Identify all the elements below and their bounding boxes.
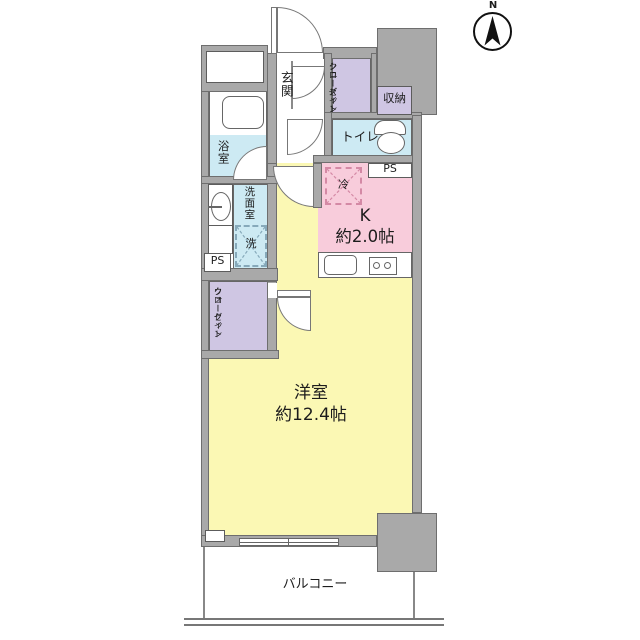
kitchen-size-label: 約2.0帖 <box>307 227 423 246</box>
wall <box>201 45 209 547</box>
wall <box>412 115 422 513</box>
wic-label-line2: クローゼット <box>211 287 222 338</box>
washbasin-tap <box>208 206 222 208</box>
balcony-railing-line <box>184 624 444 626</box>
kitchen-label: K <box>307 206 423 225</box>
entry-door-swing <box>277 7 323 53</box>
stove-burner <box>373 262 380 269</box>
pipe-space-left-label: PS <box>204 255 231 268</box>
toilet-label: トイレ <box>330 130 390 145</box>
floor-plan-canvas: N 玄関 シューズイン クローゼット 収納 トイレ PS PS 冷 洗 浴室 洗… <box>0 0 640 640</box>
shoes-closet-floor <box>332 58 371 114</box>
wic-door-leaf <box>277 290 311 297</box>
main-room-size-label: 約12.4帖 <box>231 405 391 425</box>
washer-label: 洗 <box>235 238 267 251</box>
bathtub <box>222 96 264 129</box>
wall <box>201 350 279 359</box>
stove-burner <box>384 262 391 269</box>
bathroom-label: 浴室 <box>216 140 230 165</box>
pipe-space-right-label: PS <box>368 163 412 176</box>
genkan-label: 玄関 <box>278 71 293 98</box>
wall <box>313 163 322 208</box>
storage-label: 収納 <box>377 92 412 106</box>
balcony-edge-right <box>413 572 415 618</box>
kitchen-sink <box>324 255 357 275</box>
balcony-railing-line <box>184 618 444 620</box>
wic-door-gap <box>268 283 277 298</box>
balcony-edge-left <box>203 547 205 618</box>
compass-north-label: N <box>483 0 503 12</box>
shoes-closet-label-line2: クローゼット <box>326 62 337 113</box>
main-room-label: 洋室 <box>231 383 391 403</box>
window-sash-line <box>240 542 338 543</box>
window-sash-tick <box>288 539 289 545</box>
balcony-label: バルコニー <box>235 577 395 592</box>
refrigerator-label: 冷 <box>325 179 362 192</box>
balcony-window <box>239 538 339 546</box>
corner-box <box>205 530 225 542</box>
washroom-counter <box>208 225 233 254</box>
washroom-label: 洗面室 <box>243 186 255 221</box>
window-bay <box>206 51 264 83</box>
wall-pillar <box>377 513 437 572</box>
compass-circle <box>473 12 512 51</box>
wall <box>313 155 422 163</box>
